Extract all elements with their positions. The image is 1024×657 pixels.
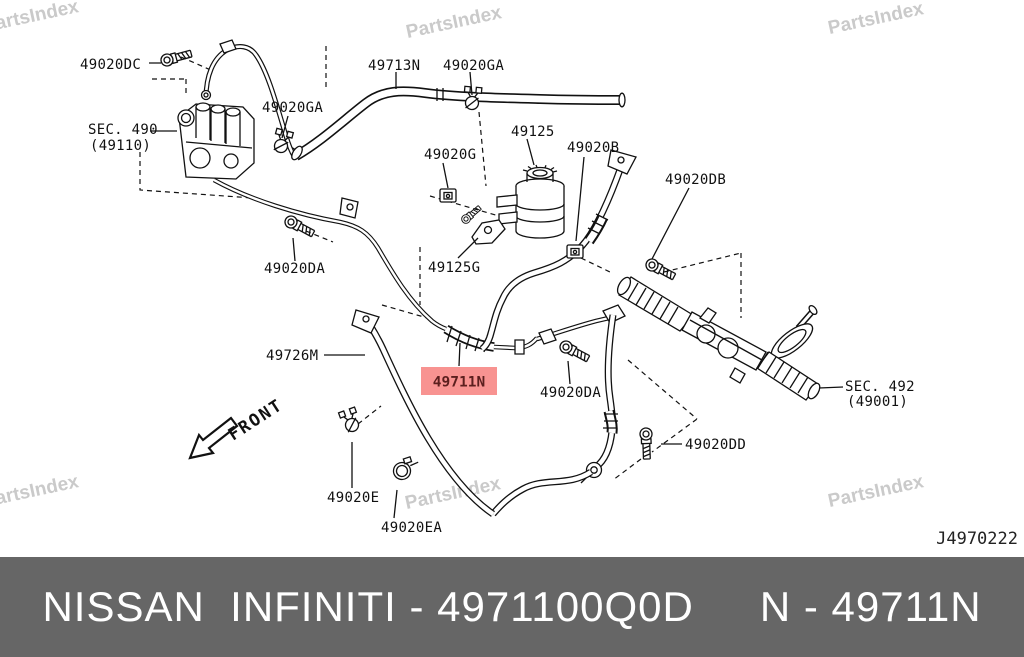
part-label-49020dc[interactable]: 49020DC <box>80 57 141 73</box>
reservoir-tank-49125 <box>497 165 564 238</box>
bolt-49020DD <box>640 428 653 459</box>
part-label-49020ga-left[interactable]: 49020GA <box>262 100 323 116</box>
part-label-49726m[interactable]: 49726M <box>266 348 318 364</box>
bracket-49125G <box>472 220 505 244</box>
bolt-49020DA-right <box>558 339 591 364</box>
part-label-49020ea[interactable]: 49020EA <box>381 520 442 536</box>
part-label-49020b[interactable]: 49020B <box>567 140 619 156</box>
highlighted-part-label[interactable]: 49711N <box>433 375 485 391</box>
parts-diagram-page: PartsIndex PartsIndex PartsIndex PartsIn… <box>0 0 1024 657</box>
steering-rack <box>615 275 822 400</box>
part-label-49020g[interactable]: 49020G <box>424 147 476 163</box>
part-label-49125g[interactable]: 49125G <box>428 260 480 276</box>
part-label-49020da-left[interactable]: 49020DA <box>264 261 325 277</box>
pressure-pipe <box>214 180 446 329</box>
watermark: PartsIndex <box>826 471 926 512</box>
figure-ref-code: J4970222 <box>936 529 1018 549</box>
clamp-49020EA <box>392 454 419 482</box>
caption-banner: NISSAN INFINITI - 4971100Q0D N - 49711N <box>0 557 1024 657</box>
clip-49020G <box>440 189 456 202</box>
hose-fitting <box>539 329 556 344</box>
bracket-bolt <box>460 204 483 225</box>
part-label-sec492-sub[interactable]: (49001) <box>847 394 908 410</box>
part-label-49020ga-right[interactable]: 49020GA <box>443 58 504 74</box>
watermark: PartsIndex <box>826 0 926 39</box>
watermark: PartsIndex <box>404 2 504 43</box>
clip-49020B <box>567 245 583 258</box>
pressure-pipe-core <box>214 180 446 329</box>
banner-text-left: NISSAN INFINITI - 4971100Q0D <box>42 583 693 631</box>
clamp-49020E <box>339 407 363 434</box>
part-label-sec492[interactable]: SEC. 492 <box>845 379 915 395</box>
part-label-sec490-sub[interactable]: (49110) <box>90 138 151 154</box>
return-hose-bottom-core <box>493 472 591 514</box>
bolt-49020DC <box>160 48 193 68</box>
elbow-fitting <box>515 340 524 354</box>
part-label-49020db[interactable]: 49020DB <box>665 172 726 188</box>
hose-end-cap <box>619 93 625 107</box>
front-indicator: FRONT <box>190 395 287 458</box>
highlighted-part[interactable]: 49711N <box>421 367 497 395</box>
pipe-bracket <box>340 198 358 218</box>
part-label-49020da-right[interactable]: 49020DA <box>540 385 601 401</box>
part-label-49713n[interactable]: 49713N <box>368 58 420 74</box>
banner-text-right: N - 49711N <box>760 583 982 631</box>
banjo-fitting <box>202 91 211 100</box>
power-steering-pump <box>178 103 254 179</box>
part-label-49020e[interactable]: 49020E <box>327 490 379 506</box>
bolt-49020DB <box>644 257 677 282</box>
front-label: FRONT <box>225 395 287 445</box>
watermark: PartsIndex <box>0 471 81 512</box>
part-label-49125[interactable]: 49125 <box>511 124 555 140</box>
watermark: PartsIndex <box>0 0 81 37</box>
watermarks: PartsIndex PartsIndex PartsIndex PartsIn… <box>0 0 926 514</box>
part-label-49020dd[interactable]: 49020DD <box>685 437 746 453</box>
part-label-sec490[interactable]: SEC. 490 <box>88 122 158 138</box>
